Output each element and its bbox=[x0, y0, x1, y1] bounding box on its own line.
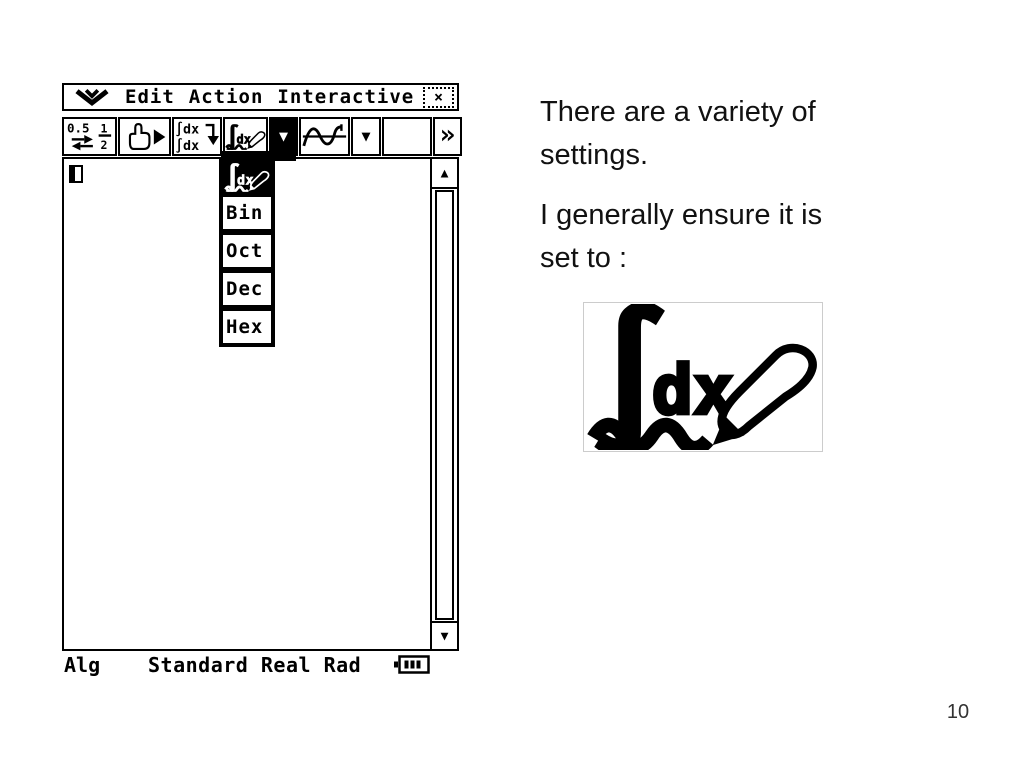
paragraph-settings: There are a variety of settings. bbox=[540, 91, 816, 177]
hand-pointer-icon bbox=[122, 121, 168, 152]
menu-bar: Edit Action Interactive × bbox=[62, 83, 459, 111]
paragraph-line: settings. bbox=[540, 134, 816, 177]
slide: Edit Action Interactive × 0.5 1 2 bbox=[0, 0, 1024, 768]
paragraph-line: There are a variety of bbox=[540, 91, 816, 134]
toolbar-spacer-button bbox=[382, 117, 432, 156]
status-bar: Alg Standard Real Rad bbox=[62, 653, 459, 677]
close-icon[interactable]: × bbox=[423, 87, 454, 108]
dropdown-item-main[interactable] bbox=[221, 161, 273, 193]
dropdown-item-oct[interactable]: Oct bbox=[221, 233, 273, 269]
graph-curve-icon bbox=[301, 121, 348, 152]
vertical-scrollbar: ▲ ▼ bbox=[430, 159, 457, 649]
status-mode[interactable]: Alg bbox=[64, 653, 100, 677]
dropdown-item-bin[interactable]: Bin bbox=[221, 195, 273, 231]
decimal-fraction-swap-icon: 0.5 1 2 bbox=[66, 120, 114, 153]
integral-dx-stylus-image bbox=[583, 302, 823, 452]
paragraph-ensure: I generally ensure it is set to : bbox=[540, 194, 822, 280]
scroll-up-icon: ▲ bbox=[441, 167, 449, 180]
battery-icon bbox=[394, 655, 430, 674]
scroll-track[interactable] bbox=[432, 189, 457, 621]
svg-text:∫dx: ∫dx bbox=[175, 122, 199, 138]
dropdown-item-hex[interactable]: Hex bbox=[221, 309, 273, 345]
graph-dropdown-button[interactable]: ▼ bbox=[351, 117, 381, 156]
double-chevron-right-icon: » bbox=[440, 122, 456, 152]
page-number: 10 bbox=[928, 701, 988, 724]
paragraph-line: set to : bbox=[540, 237, 822, 280]
integral-dx-stylus-icon bbox=[585, 304, 821, 450]
select-pointer-button[interactable] bbox=[118, 117, 171, 156]
fraction-decimal-toggle-button[interactable]: 0.5 1 2 bbox=[62, 117, 117, 156]
scroll-thumb[interactable] bbox=[435, 190, 454, 620]
classpad-screenshot: Edit Action Interactive × 0.5 1 2 bbox=[62, 83, 459, 677]
paragraph-line: I generally ensure it is bbox=[540, 194, 822, 237]
status-settings[interactable]: Standard Real Rad bbox=[148, 653, 361, 677]
dropdown-item-dec[interactable]: Dec bbox=[221, 271, 273, 307]
integral-dx-stylus-icon bbox=[225, 124, 266, 150]
svg-text:0.5: 0.5 bbox=[66, 121, 89, 136]
menu-item-action[interactable]: Action bbox=[189, 86, 264, 108]
svg-text:2: 2 bbox=[100, 138, 107, 152]
menu-item-edit[interactable]: Edit bbox=[125, 86, 175, 108]
menu-item-interactive[interactable]: Interactive bbox=[277, 86, 414, 108]
dropdown-arrow-icon: ▼ bbox=[279, 129, 288, 144]
more-tools-button[interactable]: » bbox=[433, 117, 462, 156]
integral-transform-button[interactable]: ∫dx ∫dx bbox=[172, 117, 222, 156]
graph-button[interactable] bbox=[299, 117, 350, 156]
apps-chevron-icon[interactable] bbox=[73, 87, 111, 107]
integral-transform-icon: ∫dx ∫dx bbox=[175, 120, 219, 153]
scroll-down-icon: ▼ bbox=[441, 630, 449, 643]
svg-text:1: 1 bbox=[100, 122, 107, 136]
dropdown-arrow-icon: ▼ bbox=[361, 129, 370, 144]
scroll-up-button[interactable]: ▲ bbox=[432, 159, 457, 189]
svg-text:∫dx: ∫dx bbox=[175, 138, 199, 153]
text-cursor bbox=[69, 165, 83, 183]
scroll-down-button[interactable]: ▼ bbox=[432, 621, 457, 649]
integral-dx-stylus-icon bbox=[224, 163, 270, 192]
number-format-dropdown: Bin Oct Dec Hex bbox=[219, 159, 275, 347]
